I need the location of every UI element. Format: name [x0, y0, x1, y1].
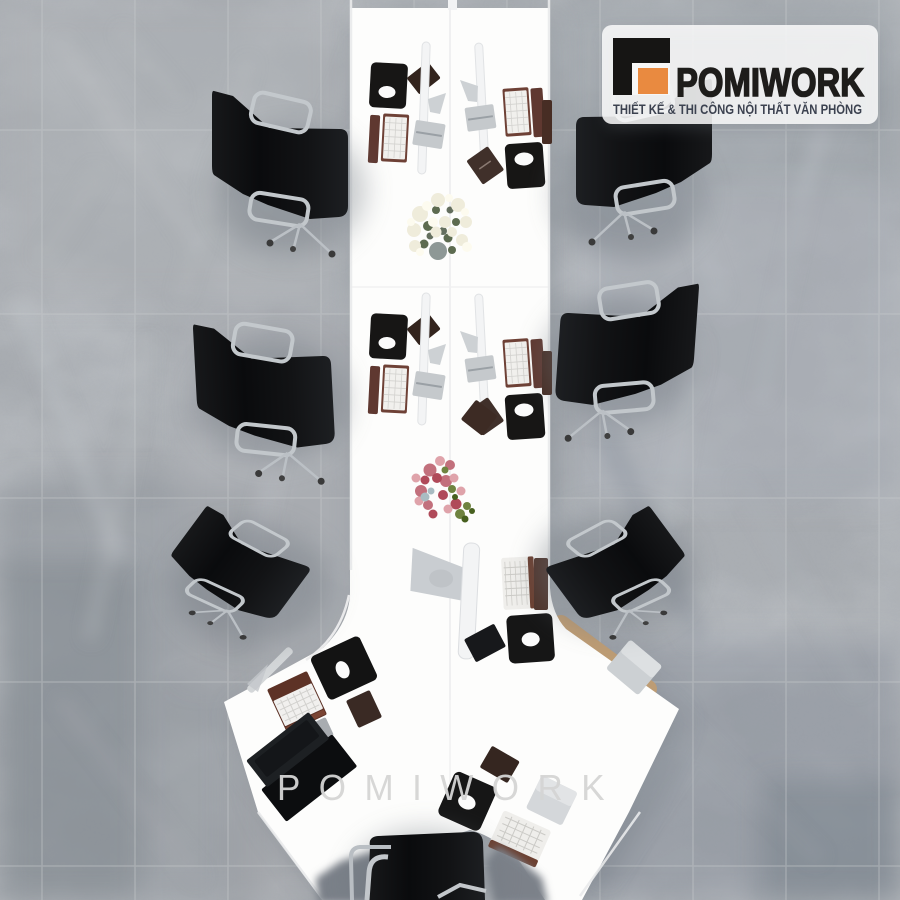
svg-text:POMIWORK: POMIWORK [676, 61, 864, 105]
svg-text:POMIWORK: POMIWORK [277, 767, 623, 808]
svg-text:THIẾT KẾ & THI CÔNG NỘI THẤT V: THIẾT KẾ & THI CÔNG NỘI THẤT VĂN PHÒNG [613, 102, 862, 117]
